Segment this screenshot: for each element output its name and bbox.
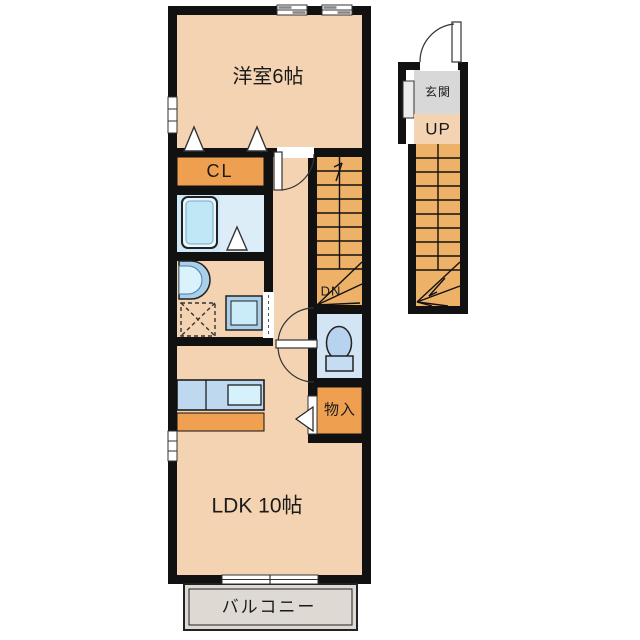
entrance-door-leaf [452, 22, 461, 62]
room-label-entrance: 玄関 [425, 86, 451, 98]
balcony-sliding-window [222, 575, 318, 584]
room-label-storage: 物入 [324, 403, 356, 418]
room-label-closet: CL [206, 162, 233, 180]
toilet-icon [326, 327, 353, 372]
wall-closet-south [177, 186, 273, 195]
floorplan-drawing [0, 0, 640, 640]
washing-machine-icon [226, 296, 262, 330]
washbasin-icon [179, 261, 210, 299]
window-left-bedroom [168, 97, 177, 133]
bedroom-door-leaf [274, 152, 282, 190]
stairs-down-label: DN [321, 285, 342, 298]
stairs-up-label: UP [425, 121, 451, 138]
entrance-step [403, 81, 414, 118]
kitchen-sink-icon [228, 385, 261, 405]
room-label-western-room: 洋室6帖 [232, 67, 303, 87]
bathtub-icon [182, 197, 217, 248]
kitchen-lower-cabinet [177, 413, 264, 431]
toilet-door-leaf [276, 340, 317, 348]
wall-washarea-east-upper [264, 148, 273, 292]
kitchen-counter [177, 380, 264, 410]
wall-bath-south [177, 252, 273, 261]
wall-storage-south [308, 434, 362, 443]
entrance-door [420, 22, 461, 71]
washroom-sliding-door [263, 292, 274, 338]
room-label-balcony: バルコニー [222, 599, 317, 616]
wall-toilet-south [308, 378, 362, 387]
window-left-ldk [168, 431, 177, 461]
wall-washroom-south [177, 337, 264, 346]
entrance-door-arc [420, 24, 454, 62]
room-label-ldk: LDK 10帖 [211, 496, 302, 517]
floorplan-canvas: 洋室6帖 CL DN 玄関 UP 物入 LDK 10帖 バルコニー [0, 0, 640, 640]
wall-washarea-east-lower [264, 338, 273, 346]
